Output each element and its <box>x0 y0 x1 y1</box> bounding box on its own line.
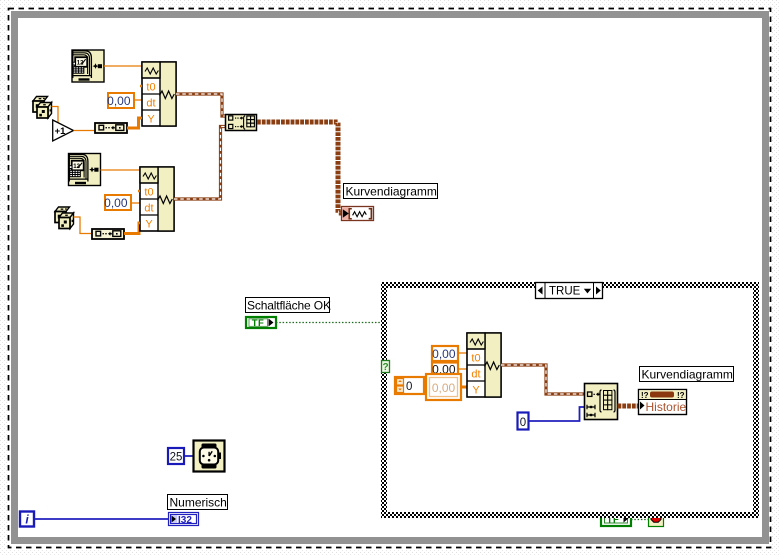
svg-text:Kurvendiagramm: Kurvendiagramm <box>642 367 733 381</box>
svg-text:TF: TF <box>252 318 265 329</box>
svg-text:Numerisch: Numerisch <box>170 495 227 509</box>
svg-text:0,00: 0,00 <box>432 347 456 361</box>
svg-text:TRUE: TRUE <box>549 285 581 297</box>
svg-text:Kurvendiagramm: Kurvendiagramm <box>346 184 437 198</box>
svg-text:dt: dt <box>146 98 155 110</box>
svg-text:0: 0 <box>520 417 526 429</box>
svg-text:Y: Y <box>145 219 153 231</box>
svg-text:Y: Y <box>147 114 155 126</box>
svg-text:!?: !? <box>677 391 685 400</box>
svg-text:?: ? <box>382 362 388 373</box>
svg-text:0,00: 0,00 <box>107 94 131 108</box>
svg-text:Schaltfläche OK: Schaltfläche OK <box>247 298 331 312</box>
svg-text:t0: t0 <box>144 187 153 199</box>
svg-text:0,00: 0,00 <box>432 381 456 395</box>
svg-text:dt: dt <box>144 203 153 215</box>
svg-text:0,00: 0,00 <box>104 196 128 210</box>
svg-text:25: 25 <box>170 452 183 464</box>
svg-text:0: 0 <box>406 381 412 393</box>
svg-text:+1: +1 <box>55 126 67 137</box>
svg-text:Y: Y <box>472 385 480 397</box>
svg-text:dt: dt <box>471 369 480 381</box>
svg-text:I32: I32 <box>178 515 192 526</box>
svg-text:t0: t0 <box>146 82 155 94</box>
svg-text:t0: t0 <box>471 353 480 365</box>
svg-text:Historie: Historie <box>646 400 687 414</box>
svg-text:!?: !? <box>641 391 649 400</box>
